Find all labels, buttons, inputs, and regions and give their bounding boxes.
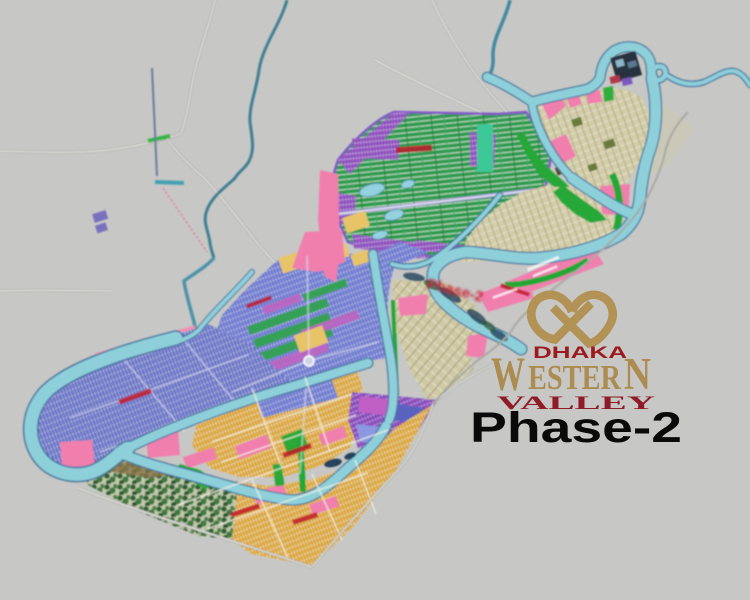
svg-text:N: N xyxy=(624,349,651,399)
svg-text:Phase-2: Phase-2 xyxy=(470,404,682,452)
svg-text:ESTER: ESTER xyxy=(528,358,622,397)
